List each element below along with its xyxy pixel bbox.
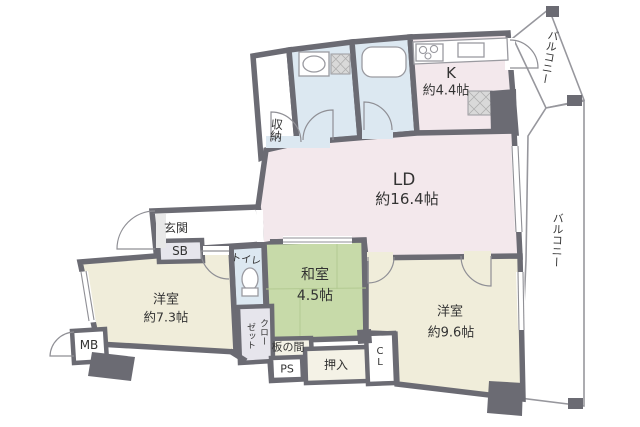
label-pipe-space: PS — [280, 363, 294, 376]
balcony-corner-mark — [568, 398, 583, 409]
label-meter-box: MB — [80, 338, 99, 352]
room-size-western1: 約7.3帖 — [144, 310, 189, 325]
vanity-sink-icon — [303, 56, 325, 72]
floor-plan: LD 約16.4帖 K 約4.4帖 和室 4.5帖 洋室 約7.3帖 洋室 約9… — [0, 0, 640, 427]
room-size-ld: 約16.4帖 — [375, 190, 438, 208]
label-closet-line2: ゼット — [245, 322, 256, 349]
floor-plan-svg: LD 約16.4帖 K 約4.4帖 和室 4.5帖 洋室 約7.3帖 洋室 約9… — [0, 0, 640, 427]
passage-opening — [256, 210, 264, 242]
label-wood-floor: 板の間 — [272, 340, 305, 354]
bathtub-icon — [362, 47, 406, 77]
room-label-ld: LD — [393, 170, 416, 190]
room-label-kitchen: K — [446, 64, 457, 82]
toilet-icon — [242, 268, 258, 290]
room-size-kitchen: 約4.4帖 — [423, 84, 470, 99]
sliding-door — [283, 236, 352, 244]
label-shoe-box: SB — [172, 244, 188, 258]
column — [357, 329, 372, 344]
room-size-japanese: 4.5帖 — [297, 288, 333, 304]
column — [88, 352, 135, 381]
label-entrance: 玄関 — [164, 220, 188, 235]
balcony-corner-mark — [546, 6, 559, 17]
column — [490, 89, 517, 134]
label-storage: 収納 — [268, 117, 284, 143]
column — [487, 381, 523, 416]
room-label-western1: 洋室 — [153, 292, 179, 308]
label-futon-closet: 押入 — [324, 358, 348, 372]
label-closet-line1: クロー — [258, 318, 268, 345]
room-size-western2: 約9.6帖 — [428, 326, 475, 341]
room-label-western2: 洋室 — [437, 304, 463, 320]
balcony-corner-mark — [567, 95, 582, 106]
label-cl: CL — [375, 346, 386, 368]
label-balcony-right: バルコニー — [550, 212, 565, 267]
door-gap — [464, 251, 491, 260]
room-label-japanese: 和室 — [301, 266, 329, 283]
passage-opening — [263, 210, 270, 242]
toilet-tank-icon — [242, 288, 258, 296]
door-arc-entrance — [117, 211, 155, 249]
door-gap — [362, 128, 393, 139]
door-gap — [367, 252, 393, 261]
kitchen-sink-icon — [458, 43, 484, 57]
